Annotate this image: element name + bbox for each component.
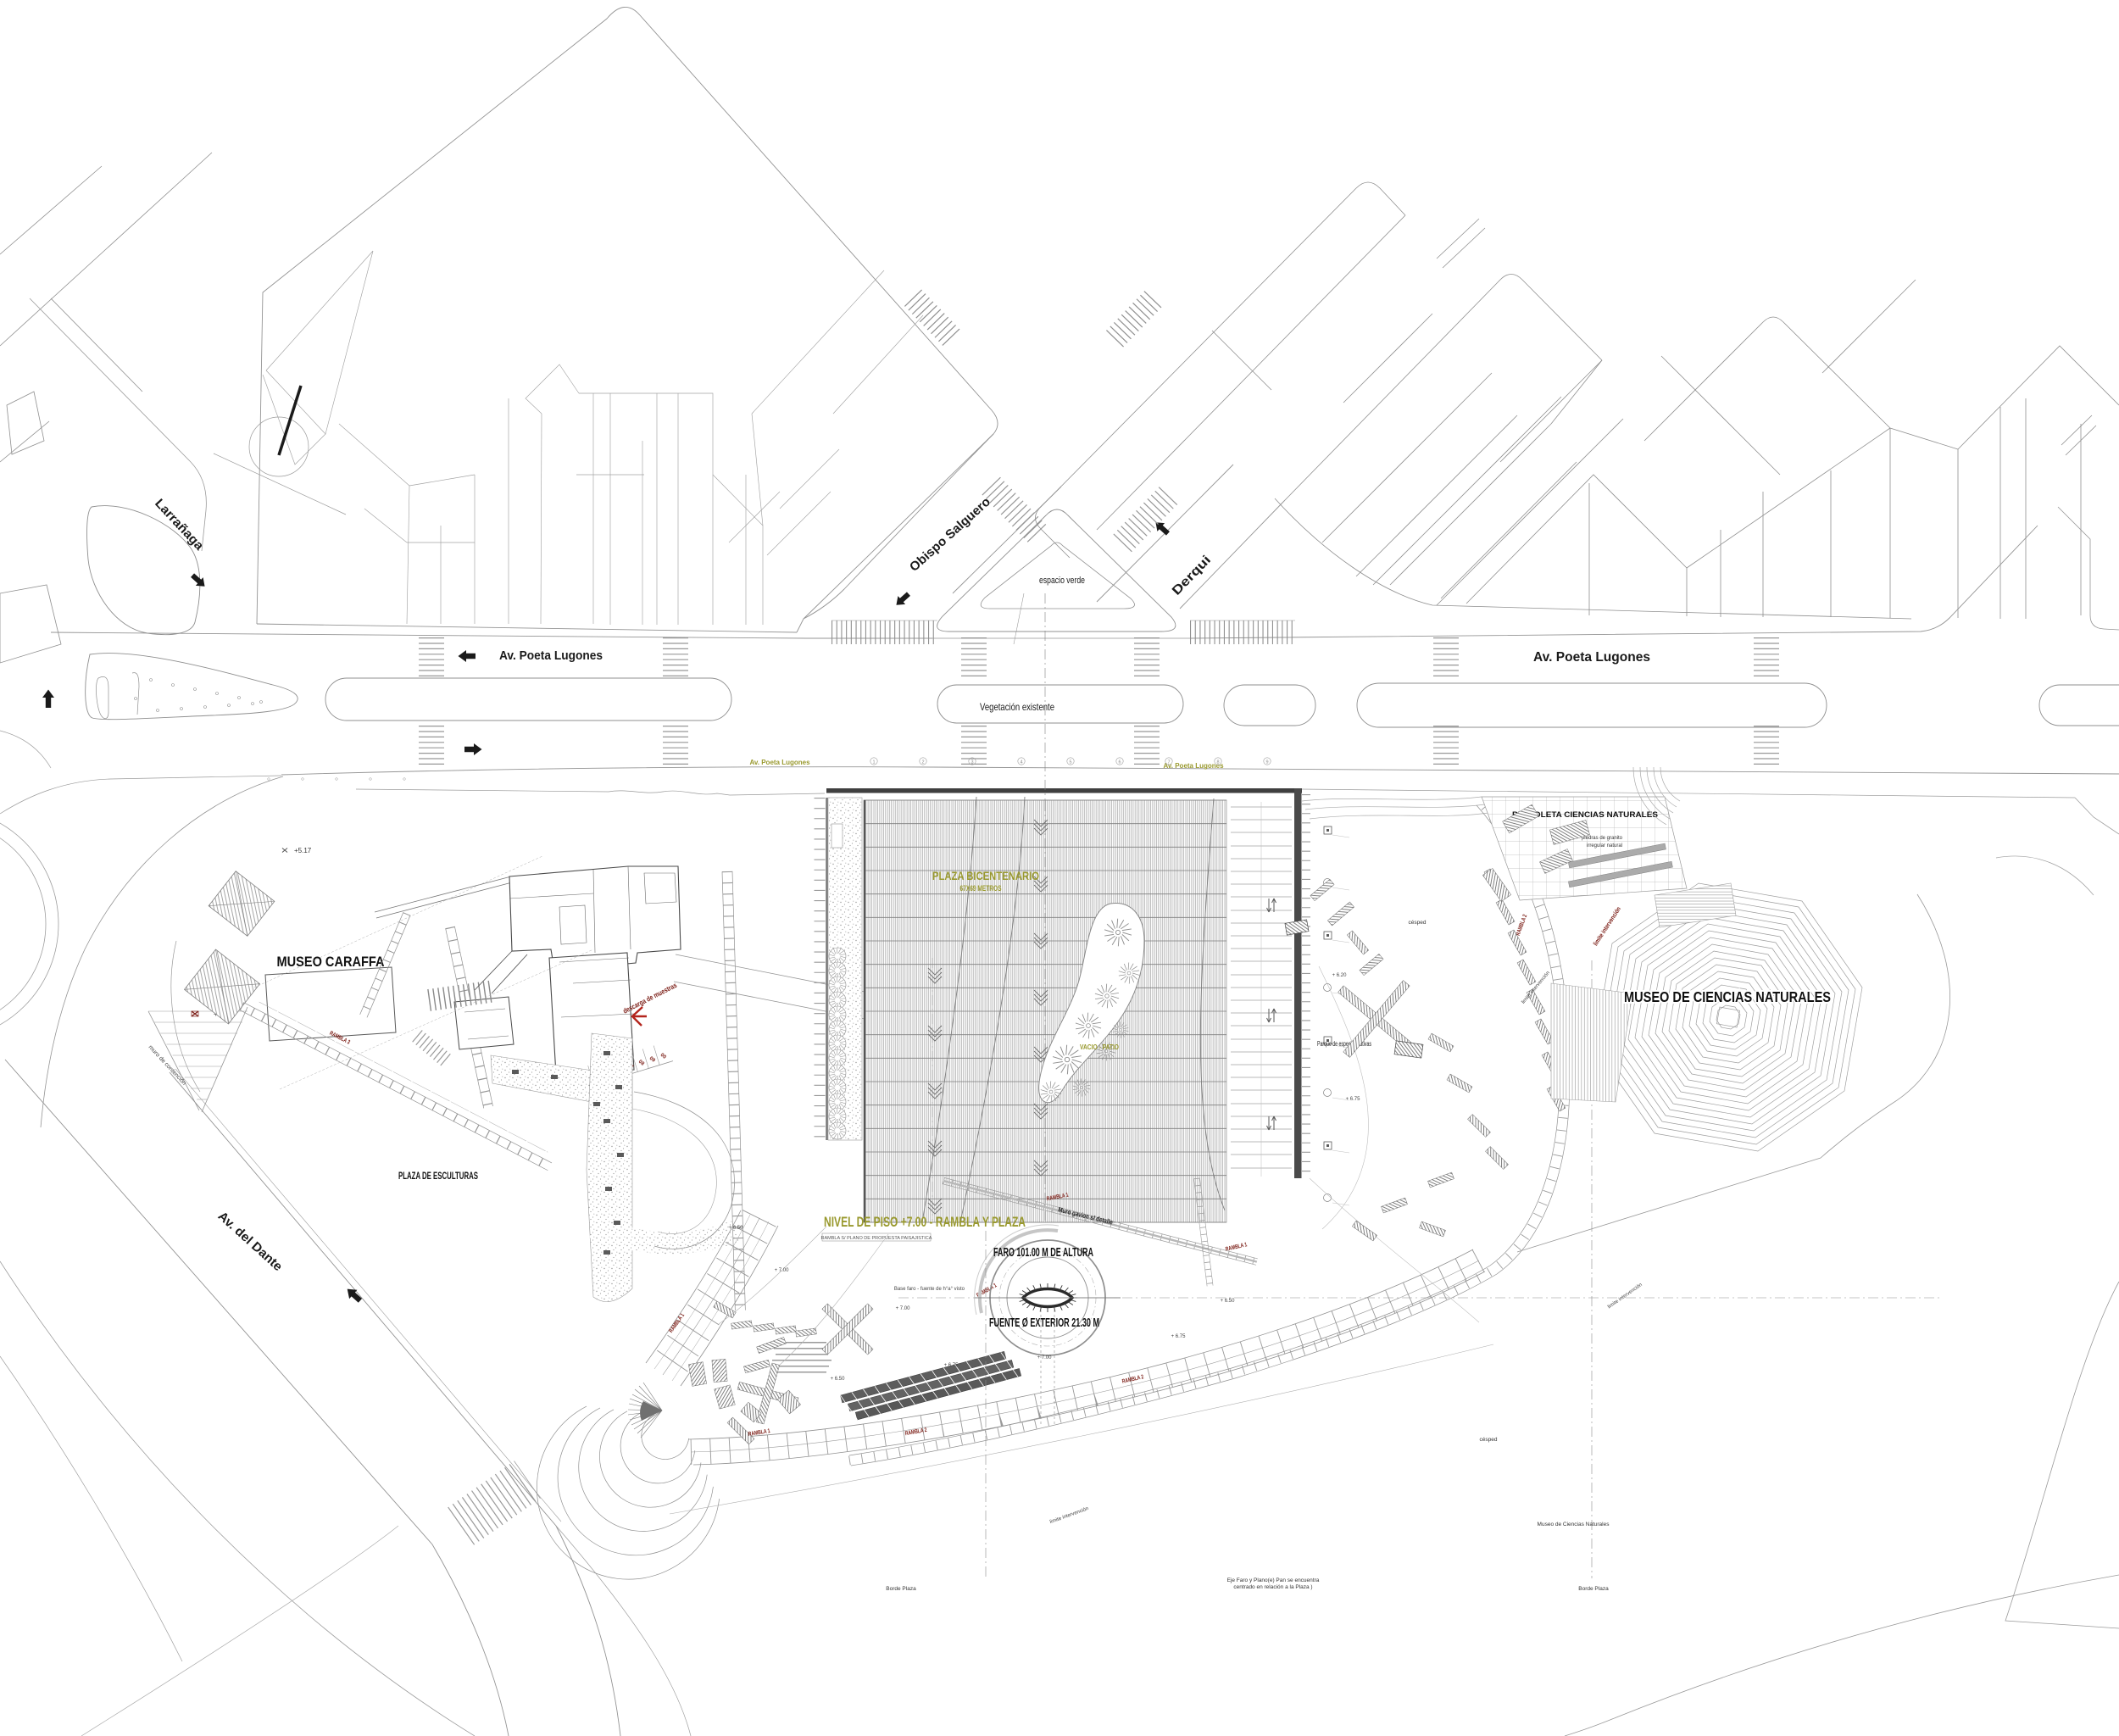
svg-text:Base faro - fuente de h°a° vis: Base faro - fuente de h°a° visto [894,1287,965,1292]
svg-text:FUENTE Ø EXTERIOR 21.30 M: FUENTE Ø EXTERIOR 21.30 M [989,1316,1099,1330]
svg-text:espacio verde: espacio verde [1039,576,1085,586]
svg-text:+ 6.75: + 6.75 [944,1363,959,1368]
svg-text:Av. Poeta Lugones: Av. Poeta Lugones [1533,650,1650,665]
svg-text:+ 7.00: + 7.00 [896,1306,911,1311]
svg-text:+ 6.20: + 6.20 [1332,973,1348,978]
svg-text:RAMBLA S/ PLANO DE PROPUESTA P: RAMBLA S/ PLANO DE PROPUESTA PAISAJISTIC… [821,1236,932,1241]
svg-text:+ 6.50: + 6.50 [1221,1299,1236,1304]
svg-text:8: 8 [1216,760,1219,765]
svg-text:+5.17: +5.17 [294,847,312,854]
svg-text:6: 6 [1118,760,1121,765]
svg-text:67X69 METROS: 67X69 METROS [960,884,1002,893]
svg-text:5: 5 [1069,760,1071,765]
svg-text:PLAZA DE ESCULTURAS: PLAZA DE ESCULTURAS [398,1170,478,1182]
svg-text:FARO 101.00 M DE ALTURA: FARO 101.00 M DE ALTURA [993,1246,1093,1260]
svg-text:9: 9 [1265,760,1268,765]
svg-text:Borde Plaza: Borde Plaza [886,1586,916,1592]
svg-text:3: 3 [971,760,973,765]
svg-text:VACIO - PATIO: VACIO - PATIO [1080,1043,1119,1051]
svg-text:Eje Faro y Plano(e) Pan se enc: Eje Faro y Plano(e) Pan se encuentra [1227,1577,1320,1583]
svg-text:4: 4 [1020,760,1022,765]
svg-text:+ 6.50: + 6.50 [831,1377,846,1382]
svg-text:Borde Plaza: Borde Plaza [1578,1586,1609,1592]
svg-text:2: 2 [921,760,924,765]
svg-text:césped: césped [1409,920,1427,926]
svg-text:PLAZA BICENTENARIO: PLAZA BICENTENARIO [932,869,1039,882]
svg-text:centrado en relación a la Plaz: centrado en relación a la Plaza ) [1233,1584,1312,1590]
svg-text:Av. Poeta Lugones: Av. Poeta Lugones [749,759,810,766]
svg-text:Vegetación existente: Vegetación existente [980,701,1054,713]
svg-text:piedras de granito: piedras de granito [1582,836,1623,841]
svg-text:césped: césped [1480,1437,1498,1443]
svg-text:Av. Poeta Lugones: Av. Poeta Lugones [499,648,603,663]
svg-text:Museo de Ciencias Naturales: Museo de Ciencias Naturales [1538,1522,1610,1527]
svg-text:+ 6.75: + 6.75 [1171,1334,1187,1339]
svg-text:1: 1 [872,760,875,765]
svg-text:+ 7.00: + 7.00 [775,1268,790,1273]
svg-text:irregular natural: irregular natural [1587,843,1622,849]
svg-text:MUSEO DE CIENCIAS NATURALES: MUSEO DE CIENCIAS NATURALES [1624,988,1831,1005]
svg-text:+ 7.00: + 7.00 [1037,1355,1053,1360]
svg-text:NIVEL DE PISO +7.00 - RAMBLA Y: NIVEL DE PISO +7.00 - RAMBLA Y PLAZA [824,1215,1026,1230]
svg-text:+ 6.50: + 6.50 [729,1226,744,1231]
svg-text:MUSEO CARAFFA: MUSEO CARAFFA [277,954,385,970]
svg-text:+ 6.75: + 6.75 [1346,1097,1361,1102]
svg-text:7: 7 [1167,760,1170,765]
